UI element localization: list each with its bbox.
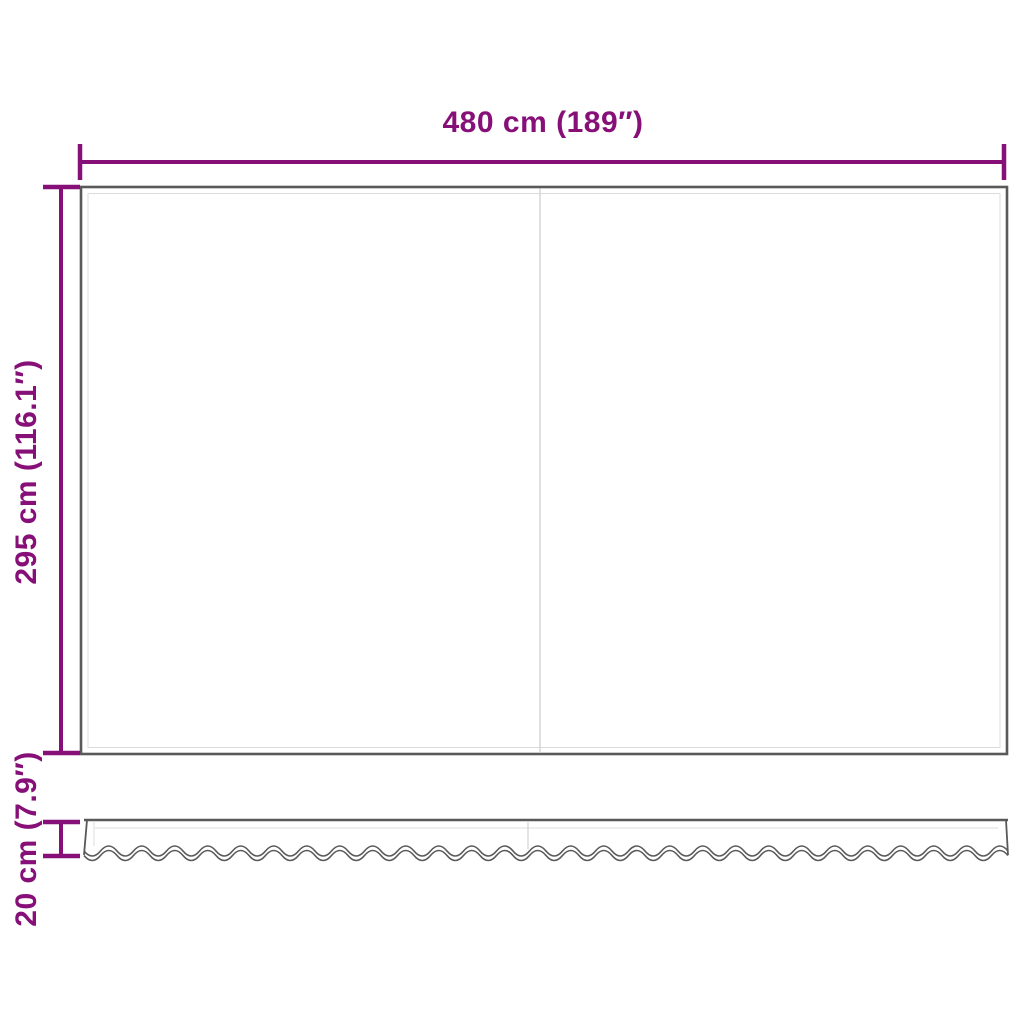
height-dimension-line [43, 187, 80, 754]
valance-dimension-label: 20 cm (7.9″) [10, 751, 44, 926]
valance-dimension-line [43, 822, 80, 857]
width-dimension-line [80, 144, 1006, 180]
width-dimension-label: 480 cm (189″) [443, 106, 644, 140]
fabric-panel-outline [81, 187, 1007, 754]
fabric-panel [81, 187, 1007, 754]
diagram-drawing [0, 0, 1024, 1024]
fabric-panel-hem-line [88, 194, 1000, 748]
valance-strip [84, 820, 1008, 861]
height-dimension-label: 295 cm (116.1″) [10, 359, 44, 584]
product-dimension-diagram: 480 cm (189″) 295 cm (116.1″) 20 cm (7.9… [0, 0, 1024, 1024]
valance-left-edge [84, 820, 87, 855]
